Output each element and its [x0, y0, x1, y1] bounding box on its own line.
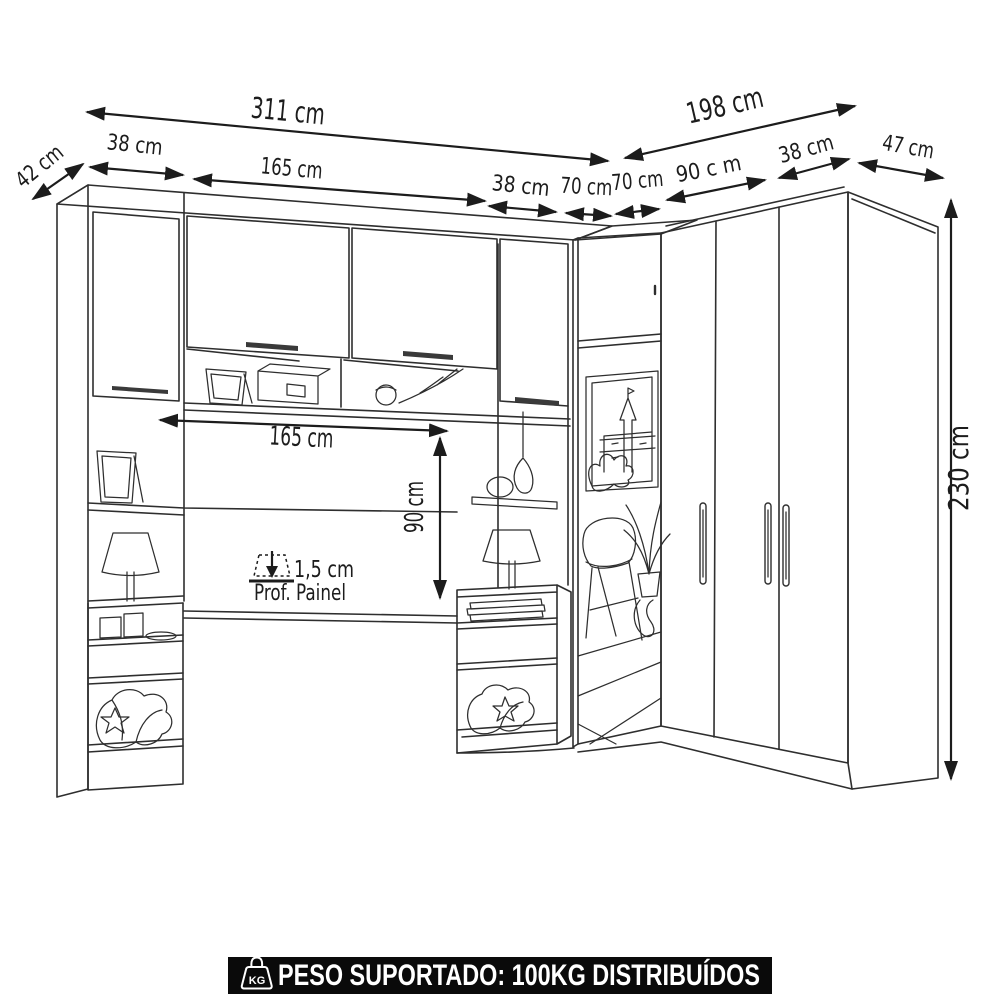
dim-total-left-width: 311 cm: [87, 91, 608, 161]
left-tower-star: [101, 708, 129, 733]
mirror-castle-sketch: [600, 388, 655, 472]
floor-sweep: [457, 748, 574, 753]
mirror-reflection: [578, 371, 670, 744]
middle-tower-books: [467, 599, 545, 621]
display-niche-items: [206, 364, 463, 405]
dim-label-38-right: 38 cm: [776, 130, 837, 169]
wardrobe-side-panel: [848, 192, 938, 789]
middle-tower-shelves: [457, 618, 557, 737]
panel-thickness-caption: Prof. Painel: [254, 581, 346, 606]
left-tower-top: [88, 596, 183, 608]
dim-corner-left-width: 70 cm: [560, 174, 613, 216]
dim-label-38-mid: 38 cm: [491, 171, 551, 202]
right-column-door: [500, 239, 568, 406]
dim-wardrobe-doors-width: 90 c m: [667, 151, 765, 200]
niche-box: [258, 364, 330, 404]
dim-label-70-a: 70 cm: [560, 174, 613, 202]
wardrobe-front-face: [661, 192, 848, 763]
dim-right-depth: 47 cm: [859, 131, 943, 178]
niche-divider: [187, 349, 458, 407]
dim-label-47: 47 cm: [880, 131, 936, 165]
weight-capacity-banner: KG PESO SUPORTADO: 100KG DISTRIBUÍDOS: [228, 957, 772, 994]
mirror-picture-frame: [586, 371, 658, 491]
dim-label-42: 42 cm: [11, 140, 69, 193]
left-tower-outline: [88, 603, 183, 790]
corner-door-divider: [578, 334, 661, 348]
right-wardrobe: [661, 187, 938, 789]
left-tower-boxes: [100, 613, 143, 638]
panel-thickness-value: 1,5 cm: [294, 557, 354, 583]
middle-tower: [457, 412, 571, 753]
overhead-door-right: [352, 228, 497, 369]
corner-plinth: [578, 742, 852, 789]
panel-thickness-note: 1,5 cm Prof. Painel: [249, 551, 354, 606]
wardrobe-top-band: [666, 187, 844, 226]
left-cube-frame: [97, 451, 143, 503]
corner-mirror-door: [573, 233, 852, 789]
dim-wardrobe-right-module: 38 cm: [776, 130, 849, 178]
left-tower-bag: [96, 690, 171, 748]
dim-label-90-top: 90 c m: [674, 151, 744, 188]
dim-label-38-left: 38 cm: [106, 130, 164, 161]
niche-feather: [399, 369, 463, 403]
headboard-bottom-line: [184, 611, 457, 623]
overhead-right-handle: [403, 351, 453, 360]
furniture-dimension-diagram: 311 cm 198 cm 42 cm 38 cm 165 cm 38 cm 7…: [0, 0, 1000, 1000]
left-lamp: [102, 533, 159, 601]
left-door-handle: [112, 386, 168, 394]
mirror-plant: [624, 502, 670, 597]
wardrobe-door-dividers: [714, 207, 779, 749]
niche-photo-frame: [206, 369, 252, 405]
depth-arrow-icon: [249, 551, 294, 581]
mirror-floor-lines: [578, 632, 661, 744]
dim-bridge-top-width: 165 cm: [194, 153, 485, 201]
right-door-handle: [515, 397, 559, 406]
middle-tower-star: [493, 697, 518, 721]
dim-right-tower-width: 38 cm: [489, 171, 556, 212]
banner-text: PESO SUPORTADO: 100KG DISTRIBUÍDOS: [278, 958, 760, 992]
dim-label-165-inner: 165 cm: [269, 421, 334, 454]
diagram-canvas: 311 cm 198 cm 42 cm 38 cm 165 cm 38 cm 7…: [0, 0, 1000, 1000]
right-column-edges: [498, 244, 568, 587]
dim-label-311: 311 cm: [249, 91, 326, 132]
dim-label-198: 198 cm: [683, 80, 767, 131]
dim-label-90-inner: 90 cm: [400, 481, 430, 533]
dim-height: 230 cm: [942, 200, 975, 779]
dim-corner-right-width: 70 cm: [610, 167, 664, 214]
overhead-left-handle: [246, 342, 298, 351]
stone-decor: [487, 477, 513, 497]
mirror-floor-vase: [634, 600, 654, 637]
overhead-door-left: [187, 216, 349, 358]
dim-label-230: 230 cm: [942, 425, 975, 511]
dim-left-tower-width: 38 cm: [90, 130, 183, 175]
dim-bridge-inner-width: 165 cm: [160, 420, 447, 455]
dim-label-165-top: 165 cm: [260, 153, 324, 184]
dim-left-depth: 42 cm: [11, 140, 83, 199]
kg-icon-label: KG: [249, 975, 266, 987]
dim-headboard-height: 90 cm: [400, 438, 440, 598]
stone-shelf: [472, 497, 557, 509]
mirror-chair: [583, 518, 642, 640]
middle-tower-bag: [468, 685, 534, 734]
wardrobe-handles: [700, 503, 789, 586]
left-tower-shelves: [88, 635, 183, 752]
middle-lamp: [483, 530, 540, 589]
dim-label-70-b: 70 cm: [610, 167, 664, 196]
wardrobe-line-drawing: [57, 185, 938, 797]
left-tower: [88, 451, 183, 790]
left-column-door: [93, 212, 179, 401]
left-side-panel: [57, 185, 88, 797]
